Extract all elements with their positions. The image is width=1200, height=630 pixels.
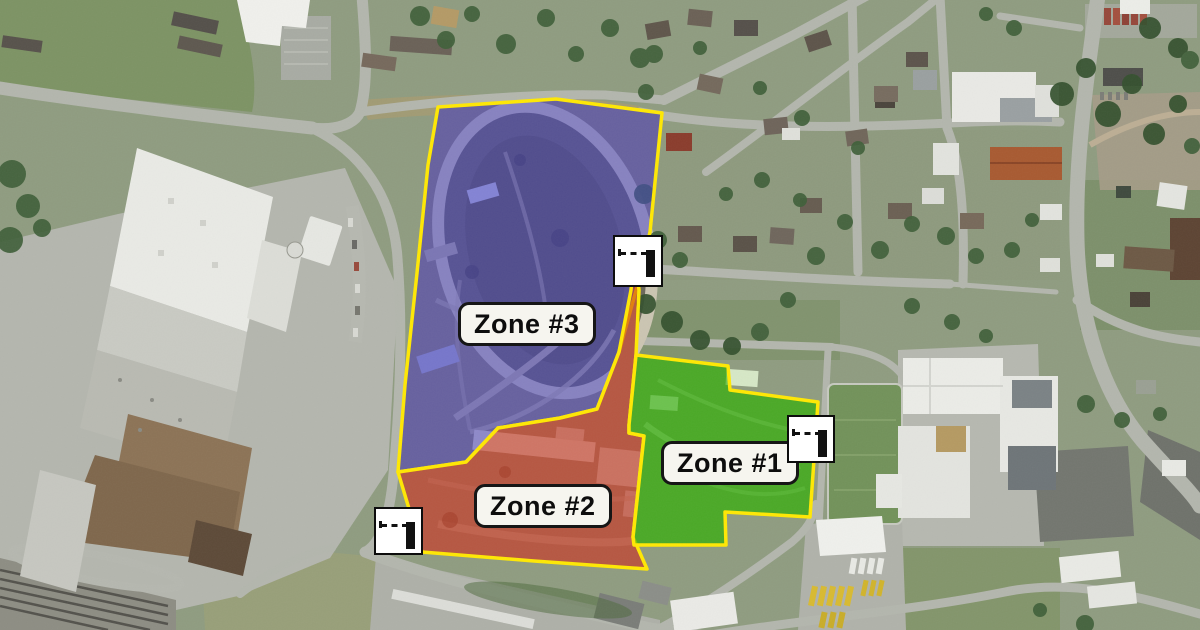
gate-marker	[787, 415, 835, 463]
zone-3-label: Zone #3	[458, 302, 596, 346]
gate-marker	[613, 235, 663, 287]
gate-icon	[620, 252, 647, 255]
zone-1-label: Zone #1	[661, 441, 799, 485]
satellite-imagery	[0, 0, 1200, 630]
gate-marker	[374, 507, 423, 555]
gate-bar-icon	[818, 430, 827, 457]
gate-icon	[794, 432, 821, 435]
zone-2-label: Zone #2	[474, 484, 612, 528]
aerial-zone-map: Zone #3 Zone #2 Zone #1	[0, 0, 1200, 630]
gate-bar-icon	[406, 522, 415, 549]
gate-bar-icon	[646, 250, 655, 277]
film-grain	[0, 0, 1200, 630]
gate-icon	[381, 524, 408, 527]
